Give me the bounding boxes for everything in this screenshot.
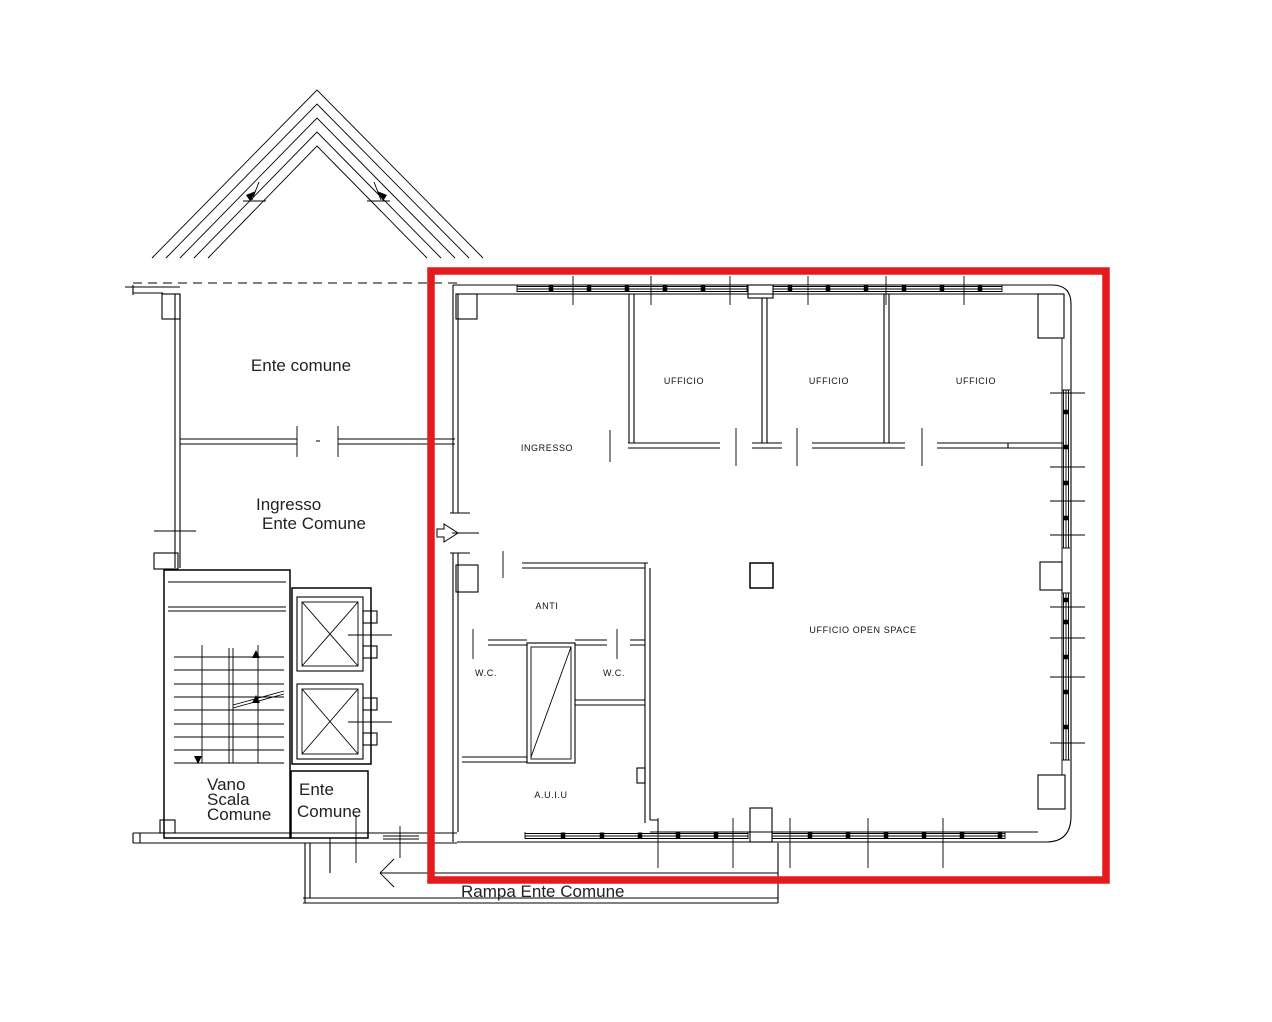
elevator-shafts (292, 588, 392, 764)
roof-slope-arrow-left (243, 182, 266, 201)
unit-left-wall (453, 285, 458, 842)
wc-right-label: W.C. (603, 668, 625, 678)
elevator-cross (302, 689, 358, 754)
roof-slope-arrow-right (367, 182, 390, 201)
structural-column (750, 563, 773, 588)
elevator-cross (302, 602, 358, 666)
stair-rail (229, 648, 233, 763)
open-space-label: UFFICIO OPEN SPACE (809, 625, 916, 635)
floor-plan-canvas: Ente comune Ingresso Ente Comune Vano Sc… (0, 0, 1272, 1022)
wall-pilaster (1040, 562, 1062, 590)
wall-pilaster (456, 294, 477, 319)
wall-pilaster (1038, 775, 1065, 809)
ufficio2-label: UFFICIO (809, 376, 849, 386)
ingresso-unit-label: INGRESSO (521, 443, 573, 453)
wall-pilaster (1038, 294, 1064, 338)
wall-pilaster (748, 285, 773, 298)
ingresso-ente-comune-label-line2: Ente Comune (262, 514, 366, 533)
ufficio3-label: UFFICIO (956, 376, 996, 386)
wall-pilaster (160, 820, 175, 833)
roof-gable (152, 90, 483, 258)
stair-up-arrow (252, 650, 260, 658)
wall-pilaster (154, 553, 178, 569)
wall-pilaster (750, 808, 772, 842)
wall-pilaster (637, 768, 645, 783)
highlight-rectangle (431, 271, 1106, 880)
unit-outer-walls (453, 276, 1085, 868)
bottom-facade-windows (525, 818, 1005, 868)
vano-scala-label-line3: Comune (207, 805, 271, 824)
stair-break-line (233, 691, 284, 708)
auiu-label: A.U.I.U (534, 790, 567, 800)
wall-pilaster (162, 294, 180, 319)
floor-plan-page: Ente comune Ingresso Ente Comune Vano Sc… (0, 0, 1272, 1022)
ingresso-ente-comune-label-line1: Ingresso (256, 495, 321, 514)
rampa-label: Rampa Ente Comune (461, 882, 624, 901)
door-jambs (610, 428, 922, 466)
ente-comune-small-label-line2: Comune (297, 802, 361, 821)
ufficio1-label: UFFICIO (664, 376, 704, 386)
window-in-wall (383, 826, 419, 858)
right-facade-windows (1050, 390, 1085, 760)
shaft-diagonal (531, 647, 571, 757)
wall-pilaster (456, 565, 478, 592)
door-jambs (473, 629, 617, 659)
top-facade-windows (517, 276, 1002, 305)
wc-left-label: W.C. (475, 668, 497, 678)
anti-label: ANTI (536, 601, 559, 611)
ente-comune-room-label: Ente comune (251, 356, 351, 375)
ente-comune-small-label-line1: Ente (299, 780, 334, 799)
unit-entry-arrow (437, 513, 479, 553)
